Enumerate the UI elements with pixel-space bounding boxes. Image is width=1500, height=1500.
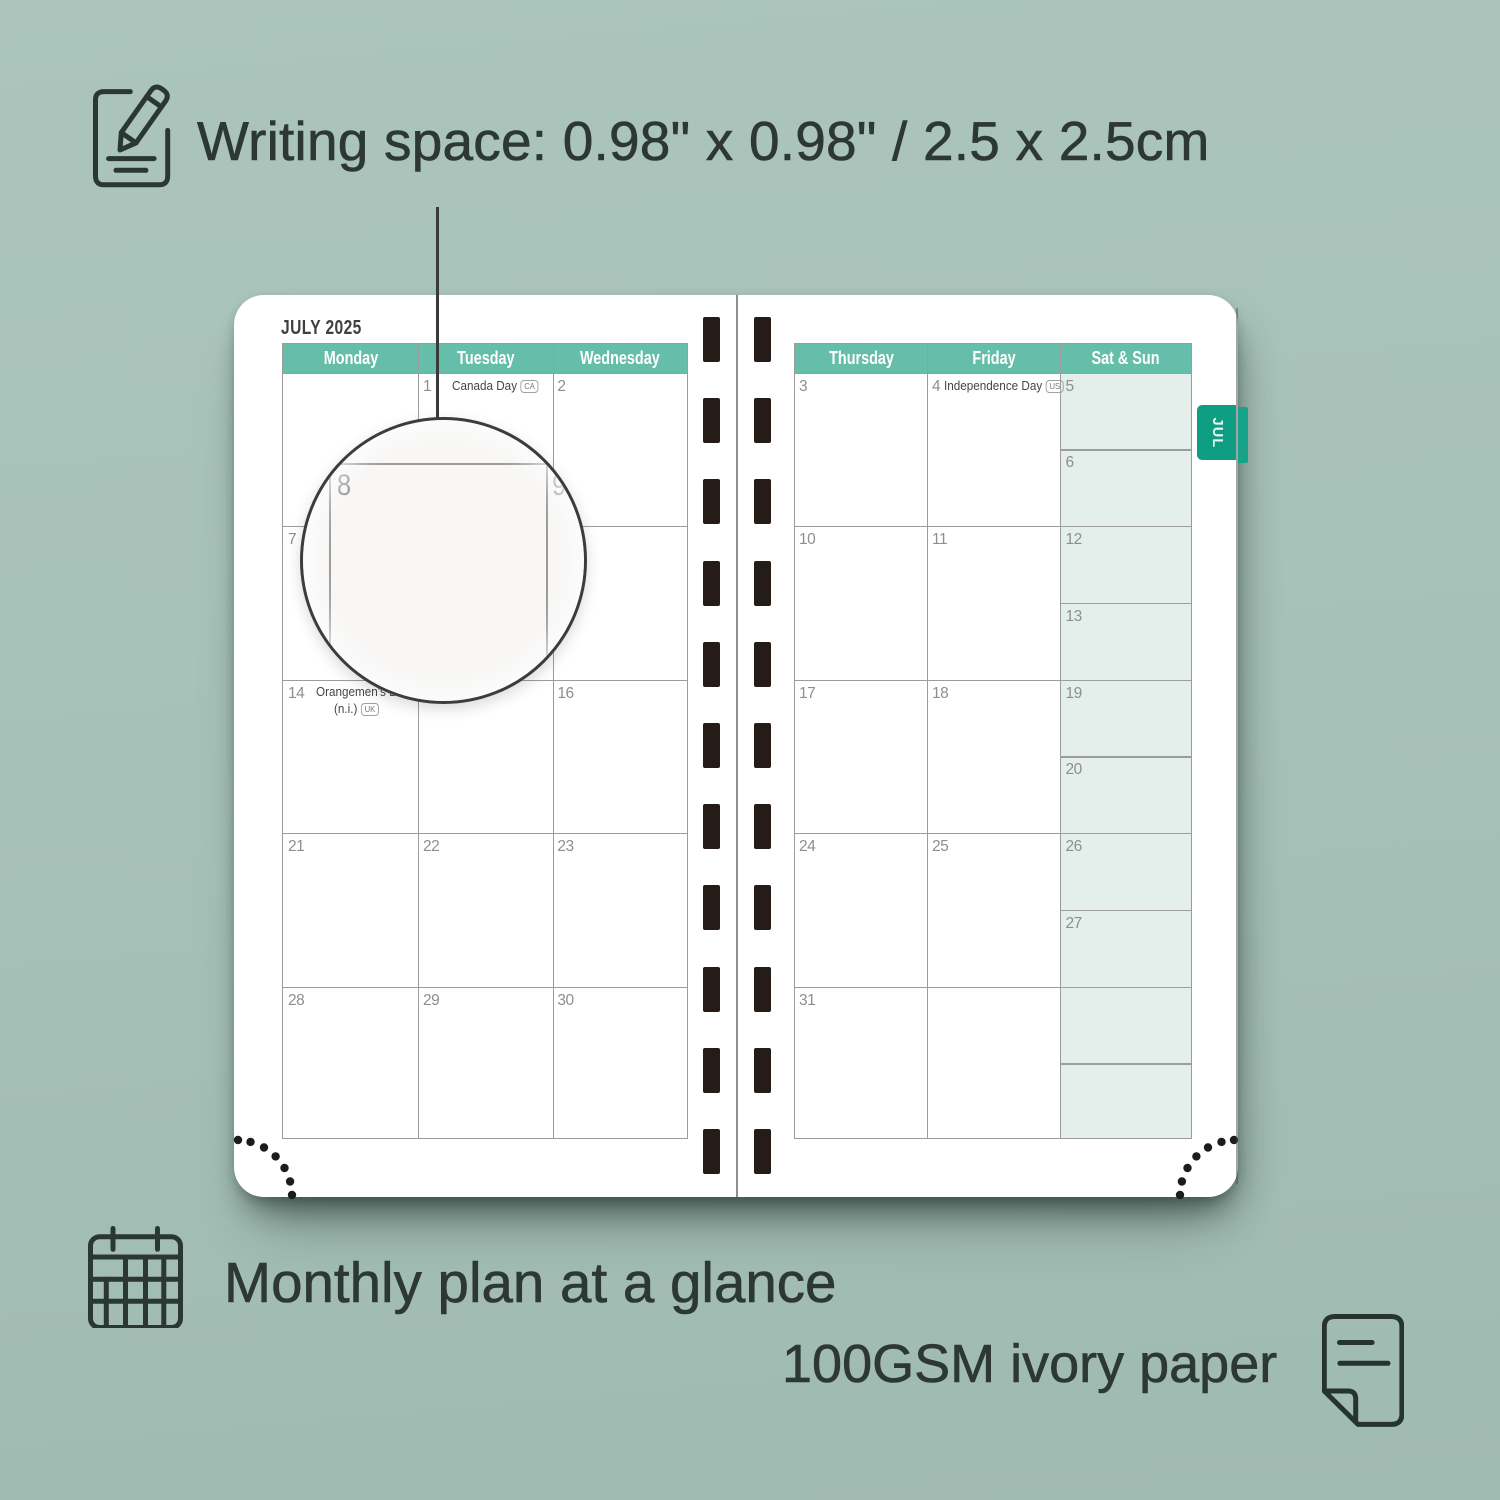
svg-text:JUL: JUL bbox=[1209, 418, 1225, 449]
